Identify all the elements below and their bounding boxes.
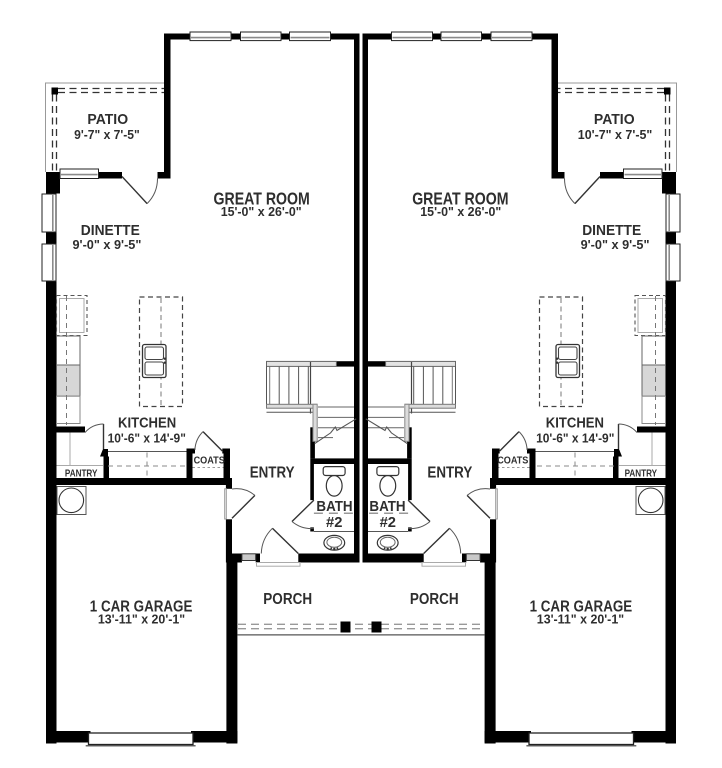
svg-text:PORCH: PORCH bbox=[263, 591, 312, 608]
svg-text:PORCH: PORCH bbox=[410, 591, 459, 608]
svg-text:PATIO: PATIO bbox=[87, 111, 128, 128]
svg-text:10'-6" x 14'-9": 10'-6" x 14'-9" bbox=[536, 432, 614, 446]
svg-text:KITCHEN: KITCHEN bbox=[118, 415, 176, 431]
svg-text:#2: #2 bbox=[380, 514, 396, 531]
svg-text:9'-7" x 7'-5": 9'-7" x 7'-5" bbox=[74, 128, 140, 142]
svg-text:BATH: BATH bbox=[316, 498, 352, 515]
svg-text:15'-0" x 26'-0": 15'-0" x 26'-0" bbox=[420, 205, 501, 219]
svg-text:ENTRY: ENTRY bbox=[427, 464, 472, 481]
svg-text:PANTRY: PANTRY bbox=[65, 468, 98, 480]
svg-text:15'-0" x 26'-0": 15'-0" x 26'-0" bbox=[221, 205, 302, 219]
svg-text:ENTRY: ENTRY bbox=[250, 464, 295, 481]
svg-text:PANTRY: PANTRY bbox=[625, 468, 658, 480]
svg-text:9'-0" x 9'-5": 9'-0" x 9'-5" bbox=[73, 238, 142, 252]
svg-text:DINETTE: DINETTE bbox=[81, 222, 140, 239]
svg-text:DINETTE: DINETTE bbox=[582, 222, 641, 239]
svg-text:9'-0" x 9'-5": 9'-0" x 9'-5" bbox=[581, 238, 650, 252]
svg-text:10'-6" x 14'-9": 10'-6" x 14'-9" bbox=[108, 432, 186, 446]
svg-text:13'-11" x 20'-1": 13'-11" x 20'-1" bbox=[537, 612, 624, 626]
svg-text:10'-7" x 7'-5": 10'-7" x 7'-5" bbox=[578, 128, 653, 142]
svg-text:COATS: COATS bbox=[194, 455, 225, 467]
svg-text:BATH: BATH bbox=[369, 498, 405, 515]
svg-text:KITCHEN: KITCHEN bbox=[546, 415, 604, 431]
svg-text:13'-11" x 20'-1": 13'-11" x 20'-1" bbox=[98, 612, 185, 626]
svg-text:PATIO: PATIO bbox=[594, 111, 635, 128]
svg-text:COATS: COATS bbox=[497, 455, 528, 467]
svg-text:#2: #2 bbox=[326, 514, 342, 531]
